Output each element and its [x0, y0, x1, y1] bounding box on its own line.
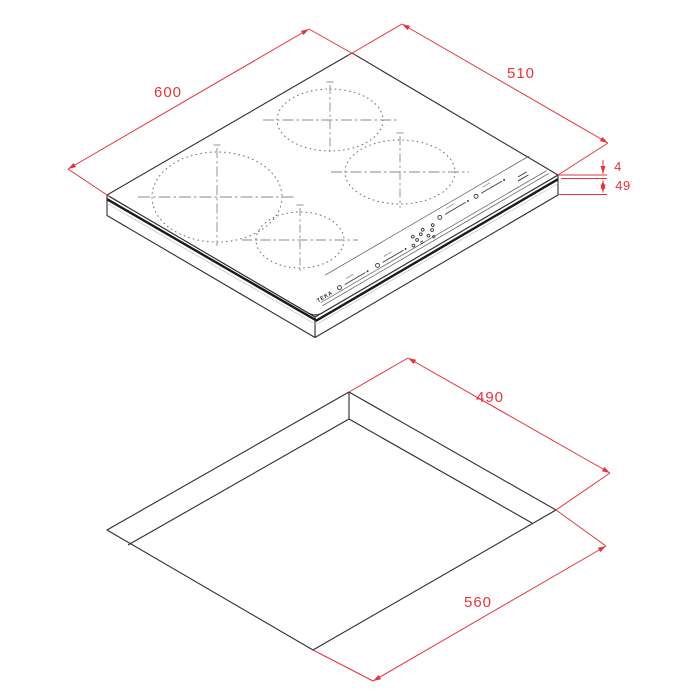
dim-label-4: 4: [614, 159, 622, 174]
dim-label-49: 49: [615, 178, 630, 193]
hob-figure: TEKA: [68, 24, 631, 338]
cutout-figure: 490 560: [107, 358, 610, 681]
cutout-inner-right-edge: [349, 419, 532, 523]
dim-label-490: 490: [476, 389, 504, 406]
dimension-560: 560: [313, 510, 606, 681]
dimension-4-49: 4 49: [559, 159, 631, 195]
dim-label-600: 600: [154, 84, 182, 101]
dimension-diagram: TEKA: [0, 0, 700, 700]
dim-label-560: 560: [464, 594, 492, 611]
cutout-opening: [107, 392, 556, 650]
dim-label-510: 510: [507, 65, 535, 82]
dimension-490: 490: [349, 358, 610, 510]
cutout-inner-left-edge: [128, 419, 349, 545]
